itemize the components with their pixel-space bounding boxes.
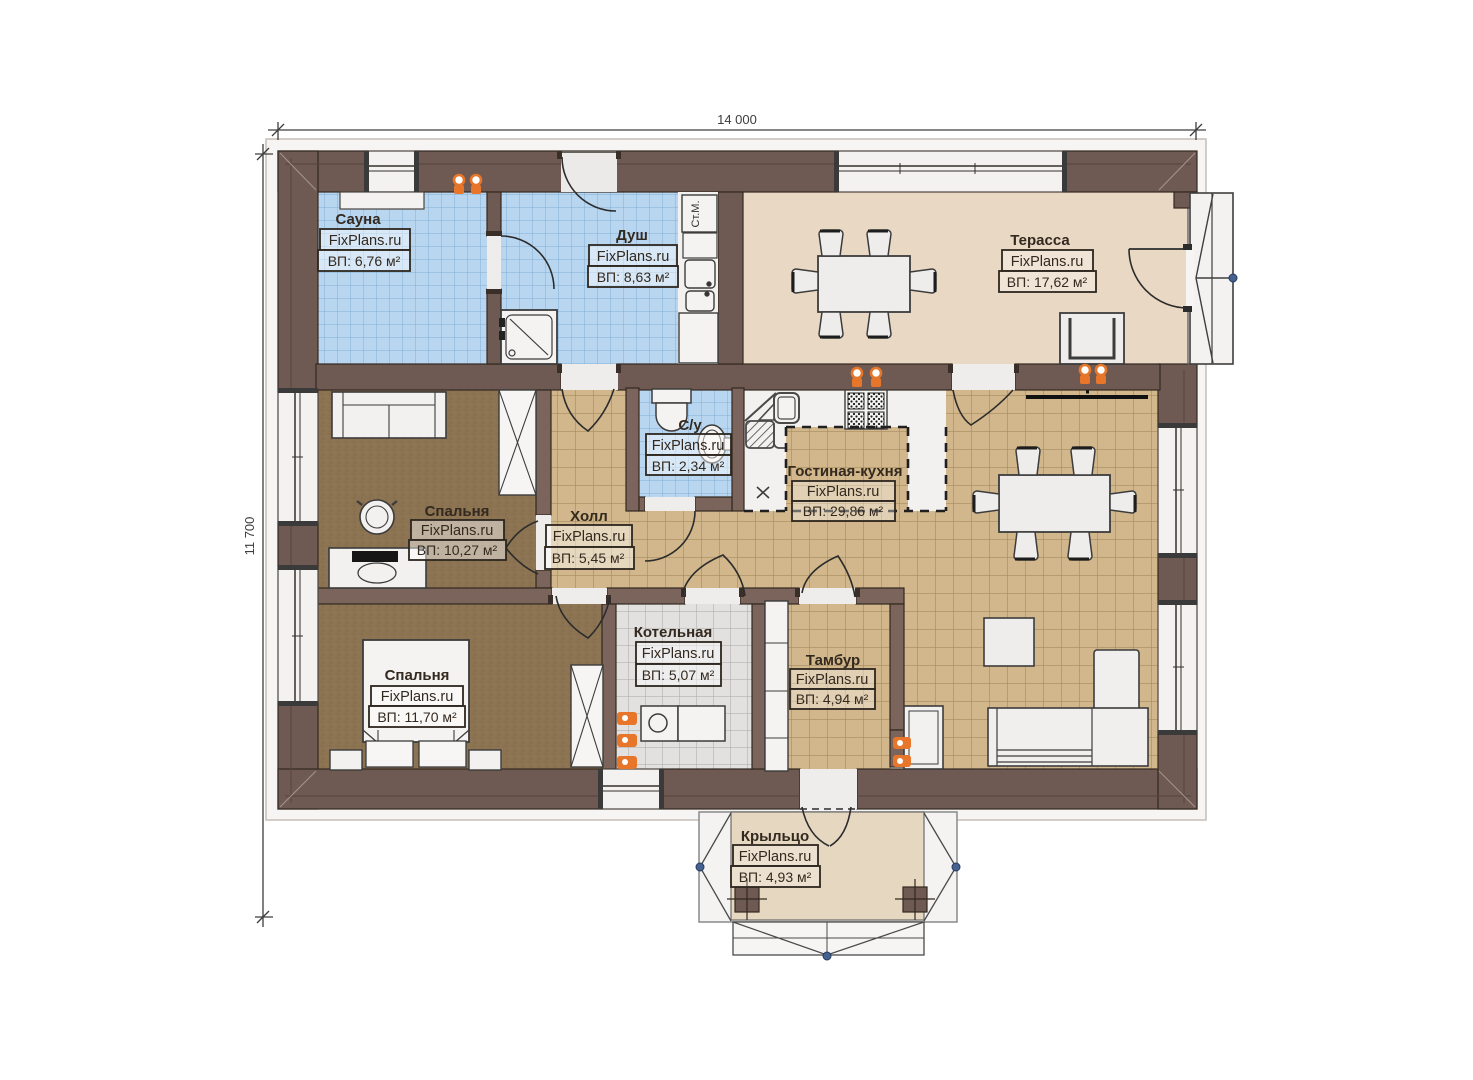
svg-text:FixPlans.ru: FixPlans.ru [796, 672, 869, 688]
svg-text:FixPlans.ru: FixPlans.ru [642, 646, 715, 662]
svg-text:ВП: 29,86 м²: ВП: 29,86 м² [803, 503, 884, 519]
svg-text:FixPlans.ru: FixPlans.ru [739, 849, 812, 865]
svg-text:ВП: 11,70 м²: ВП: 11,70 м² [377, 709, 457, 725]
svg-text:FixPlans.ru: FixPlans.ru [421, 523, 494, 539]
svg-text:Гостиная-кухня: Гостиная-кухня [788, 463, 903, 480]
svg-text:ВП: 17,62 м²: ВП: 17,62 м² [1007, 274, 1088, 290]
svg-text:FixPlans.ru: FixPlans.ru [1011, 254, 1084, 270]
svg-text:FixPlans.ru: FixPlans.ru [597, 249, 670, 265]
svg-text:Котельная: Котельная [634, 624, 713, 641]
svg-text:Терасса: Терасса [1010, 232, 1070, 249]
svg-text:ВП: 2,34 м²: ВП: 2,34 м² [652, 458, 725, 474]
svg-text:Душ: Душ [616, 227, 648, 244]
svg-text:ВП: 10,27 м²: ВП: 10,27 м² [417, 542, 498, 558]
svg-text:ВП: 8,63 м²: ВП: 8,63 м² [597, 269, 670, 285]
svg-text:Тамбур: Тамбур [806, 652, 860, 669]
svg-text:11 700: 11 700 [242, 517, 257, 556]
svg-text:ВП: 5,45 м²: ВП: 5,45 м² [552, 550, 625, 566]
svg-text:Крыльцо: Крыльцо [741, 828, 809, 845]
svg-text:ВП: 4,94 м²: ВП: 4,94 м² [796, 691, 869, 707]
svg-text:ВП: 4,93 м²: ВП: 4,93 м² [739, 869, 812, 885]
svg-text:14 000: 14 000 [717, 112, 757, 127]
svg-text:Спальня: Спальня [425, 503, 490, 520]
svg-text:ВП: 5,07 м²: ВП: 5,07 м² [642, 667, 715, 683]
svg-text:FixPlans.ru: FixPlans.ru [807, 484, 880, 500]
svg-text:FixPlans.ru: FixPlans.ru [652, 438, 725, 454]
svg-text:ВП: 6,76 м²: ВП: 6,76 м² [328, 253, 401, 269]
svg-text:Ст.М.: Ст.М. [690, 200, 702, 227]
svg-text:FixPlans.ru: FixPlans.ru [381, 689, 454, 705]
svg-text:Спальня: Спальня [385, 667, 450, 684]
svg-text:FixPlans.ru: FixPlans.ru [329, 233, 402, 249]
svg-text:С/у: С/у [678, 417, 702, 434]
svg-text:Сауна: Сауна [335, 211, 381, 228]
svg-text:Холл: Холл [570, 508, 608, 525]
svg-text:FixPlans.ru: FixPlans.ru [553, 529, 626, 545]
